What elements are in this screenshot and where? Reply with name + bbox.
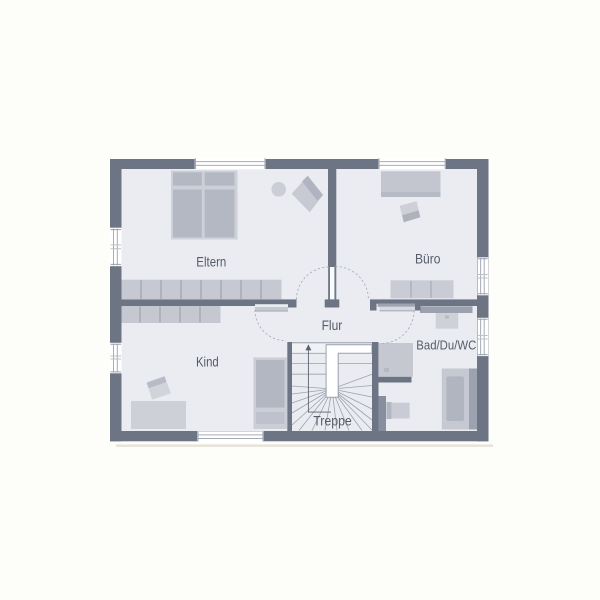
svg-text:Treppe: Treppe: [313, 413, 352, 428]
svg-text:Bad/Du/WC: Bad/Du/WC: [416, 339, 476, 353]
svg-text:Eltern: Eltern: [196, 254, 226, 269]
svg-text:Büro: Büro: [415, 252, 441, 267]
svg-text:Flur: Flur: [322, 318, 343, 333]
svg-text:Kind: Kind: [196, 355, 219, 370]
